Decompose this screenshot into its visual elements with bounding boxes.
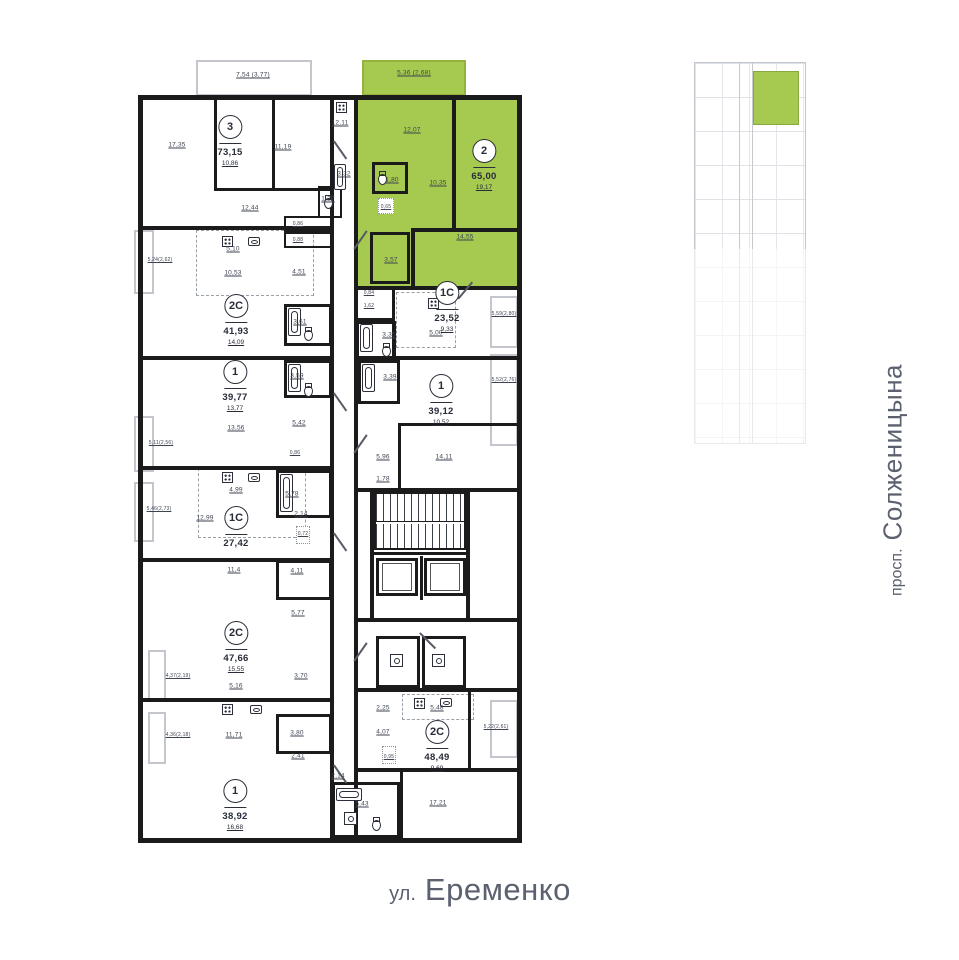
wall-segment [374, 552, 466, 555]
room-area-label: 0,72 [298, 531, 309, 537]
elevator [424, 558, 466, 596]
apartment-badge-65-00[interactable]: 2 65,00 19,17 [471, 139, 496, 191]
apartment-badge-38-92[interactable]: 1 38,92 16,68 [222, 779, 247, 831]
wall-segment [214, 188, 334, 191]
room-area-label: 2,14 [294, 511, 307, 518]
apartment-living-area: 15,55 [223, 666, 248, 673]
balcony-outline [148, 712, 166, 764]
badge-divider [224, 807, 246, 808]
apartment-living-area: 9,69 [424, 765, 449, 772]
room-area-label: 5,42 [292, 420, 305, 427]
apartment-total-area: 73,15 [217, 147, 242, 158]
room-area-label: 11,19 [275, 144, 292, 151]
apartment-badge-48-49[interactable]: 2C 48,49 9,69 [424, 720, 449, 772]
apartment-total-area: 23,52 [434, 313, 459, 324]
door-swing [333, 392, 347, 411]
apartment-total-area: 39,77 [222, 392, 247, 403]
apartment-living-area: 13,77 [222, 405, 247, 412]
bathtub-icon [362, 364, 375, 392]
badge-divider [219, 143, 241, 144]
street-label-right: просп. Солженицына [878, 364, 909, 596]
apartment-type-circle: 2C [224, 294, 248, 318]
balcony-area-label: 4,36(2,18) [166, 732, 191, 738]
wall-segment [400, 770, 403, 838]
wall-segment [466, 488, 470, 620]
apartment-living-area: 10,86 [217, 160, 242, 167]
wall-segment [398, 423, 517, 426]
room-area-label: 0,84 [364, 290, 375, 296]
balcony-area-label: 5,59(2,80) [492, 311, 517, 317]
badge-divider [473, 167, 495, 168]
bathroom [276, 714, 332, 754]
room-area-label: 14,11 [436, 454, 453, 461]
street-prefix: просп. [889, 548, 907, 596]
badge-divider [225, 322, 247, 323]
badge-divider [225, 649, 247, 650]
room-area-label: 5,48 [430, 705, 443, 712]
room-area-label: 4,07 [376, 729, 389, 736]
wall-segment [517, 95, 522, 843]
room-area-label: 4,11 [291, 568, 304, 575]
street-label-bottom: ул. Еременко [389, 872, 571, 908]
room-area-label: 0,88 [293, 237, 304, 243]
apartment-type-circle: 1 [223, 360, 247, 384]
apartment-total-area: 41,93 [223, 326, 248, 337]
room-area-label: 1,80 [385, 177, 398, 184]
apartment-badge-23-52[interactable]: 1C 23,52 9,33 [434, 281, 459, 333]
wall-segment [356, 618, 522, 622]
street-name: Еременко [425, 872, 571, 908]
room-area-label: 1,27 [321, 196, 334, 203]
bathtub-icon [360, 324, 373, 352]
room-area-label: 3,61 [293, 319, 306, 326]
room-area-label: 5,96 [376, 454, 389, 461]
balcony-area-label: 5,24(2,62) [148, 257, 173, 263]
elevator [376, 558, 418, 596]
badge-divider [426, 748, 448, 749]
wc-room [284, 232, 332, 248]
apartment-badge-47-66[interactable]: 2C 47,66 15,55 [223, 621, 248, 673]
wall-segment [411, 228, 517, 232]
room-area-label: 4,99 [229, 487, 242, 494]
apartment-living-area: 16,68 [222, 824, 247, 831]
room-area-label: 12,07 [403, 127, 420, 134]
room-area-label: 2,25 [376, 705, 389, 712]
room-area-label: 3,59 [290, 373, 303, 380]
room-area-label: 5,78 [285, 491, 298, 498]
badge-divider [436, 309, 458, 310]
apartment-total-area: 38,92 [222, 811, 247, 822]
room-area-label: 12,99 [196, 515, 213, 522]
room-area-label: 10,35 [429, 180, 446, 187]
apartment-total-area: 27,42 [223, 538, 248, 549]
room-area-label: 0,65 [381, 204, 392, 210]
apartment-total-area: 65,00 [471, 171, 496, 182]
apartment-type-circle: 2C [224, 621, 248, 645]
wall-segment [411, 228, 415, 286]
room-area-label: 4,51 [292, 269, 305, 276]
apartment-type-circle: 2 [472, 139, 496, 163]
apartment-living-area: 19,17 [471, 184, 496, 191]
wall-segment [468, 690, 471, 768]
wall-segment [452, 97, 456, 230]
room-area-label: 14,55 [456, 234, 473, 241]
apartment-living-area: 10,52 [428, 419, 453, 426]
room-area-label: 3,70 [294, 673, 307, 680]
room-area-label: 3,80 [290, 730, 303, 737]
stove-icon [222, 704, 233, 715]
balcony-outline [490, 354, 518, 446]
staircase [374, 492, 466, 550]
room-area-label: 17,21 [429, 800, 446, 807]
apartment-badge-73-15[interactable]: 3 73,15 10,86 [217, 115, 242, 167]
minimap-fade-overlay [693, 249, 807, 445]
room-area-label: 10,53 [224, 270, 241, 277]
washer-icon [432, 654, 445, 667]
stove-icon [222, 472, 233, 483]
room-area-label: 3,39 [383, 374, 396, 381]
balcony-area-label: 5,11(2,56) [149, 440, 173, 446]
bathroom [276, 560, 332, 600]
wall-segment [398, 423, 401, 488]
room-area-label: 1,62 [364, 303, 375, 309]
apartment-type-circle: 3 [218, 115, 242, 139]
wall-segment [138, 698, 334, 702]
badge-divider [430, 402, 452, 403]
door-swing [333, 140, 347, 159]
highlighted-balcony [362, 60, 466, 96]
balcony-area-label: 5,36 (2,68) [397, 70, 431, 77]
wall-segment [420, 556, 423, 600]
apartment-badge-27-42[interactable]: 1C 27,42 [223, 506, 248, 549]
door-swing [333, 532, 347, 551]
balcony-area-label: 5,22(2,61) [484, 724, 509, 730]
room-area-label: 2,14 [331, 773, 344, 780]
stove-icon [414, 698, 425, 709]
apartment-living-area: 9,33 [434, 326, 459, 333]
apartment-total-area: 48,49 [424, 752, 449, 763]
washer-icon [390, 654, 403, 667]
sink-icon [248, 237, 260, 246]
room-area-label: 3,35 [382, 332, 395, 339]
room-area-label: 5,16 [229, 683, 242, 690]
room-area-label: 17,35 [168, 142, 185, 149]
apartment-badge-39-12[interactable]: 1 39,12 10,52 [428, 374, 453, 426]
floor-minimap[interactable] [694, 62, 806, 444]
room-area-label: 0,86 [290, 450, 301, 456]
room-area-label: 3,32 [337, 171, 350, 178]
minimap-highlight-unit[interactable] [753, 71, 799, 125]
room-area-label: 1,78 [376, 476, 389, 483]
balcony-outline [490, 296, 518, 348]
room-area-label: 2,41 [291, 753, 304, 760]
street-name: Солженицына [878, 364, 909, 540]
badge-divider [225, 534, 247, 535]
wall-segment [354, 95, 358, 843]
wc-room [284, 216, 332, 232]
apartment-type-circle: 2C [425, 720, 449, 744]
room-area-label: 0,86 [293, 221, 304, 227]
room-area-label: 11,4 [228, 567, 241, 574]
balcony-area-label: 7,54 (3,77) [236, 72, 270, 79]
wall-segment [356, 688, 522, 692]
apartment-type-circle: 1 [429, 374, 453, 398]
bathtub-icon [336, 788, 362, 801]
room-area-label: 5,77 [291, 610, 304, 617]
apartment-type-circle: 1C [435, 281, 459, 305]
balcony-area-label: 5,52(2,76) [492, 377, 517, 383]
apartment-total-area: 39,12 [428, 406, 453, 417]
sink-icon [250, 705, 262, 714]
balcony-outline [148, 650, 166, 702]
badge-divider [224, 388, 246, 389]
room-area-label: 12,11 [332, 120, 349, 127]
balcony-area-label: 4,37(2,19) [166, 673, 191, 679]
apartment-type-circle: 1C [224, 506, 248, 530]
room-area-label: 0,95 [384, 754, 395, 760]
stove-icon [336, 102, 347, 113]
room-area-label: 11,71 [226, 732, 243, 739]
room-area-label: 3,57 [384, 257, 397, 264]
room-area-label: 5,43 [355, 801, 368, 808]
street-prefix: ул. [389, 883, 416, 906]
room-area-label: 13,56 [227, 425, 244, 432]
apartment-badge-39-77[interactable]: 1 39,77 13,77 [222, 360, 247, 412]
apartment-total-area: 47,66 [223, 653, 248, 664]
balcony-outline [134, 482, 154, 542]
apartment-type-circle: 1 [223, 779, 247, 803]
sink-icon [248, 473, 260, 482]
room-area-label: 5,10 [226, 246, 239, 253]
washer-icon [344, 812, 357, 825]
apartment-badge-41-93[interactable]: 2C 41,93 14,09 [223, 294, 248, 346]
apartment-living-area: 14,09 [223, 339, 248, 346]
room-area-label: 12,44 [241, 205, 258, 212]
floor-plan-page: 17,35 11,19 12,44 12,11 3,32 1,27 7,54 (… [0, 0, 959, 960]
balcony-area-label: 5,46(2,73) [147, 506, 172, 512]
